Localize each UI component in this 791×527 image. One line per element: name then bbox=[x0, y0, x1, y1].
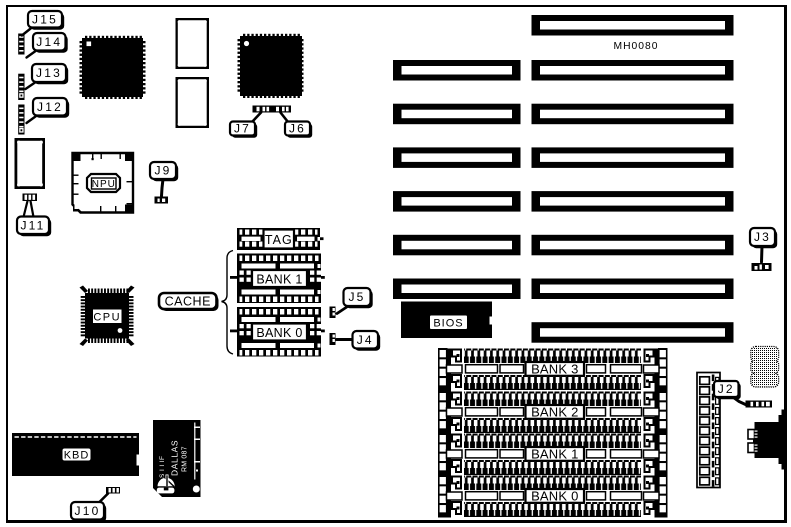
svg-text:J5: J5 bbox=[348, 290, 365, 304]
svg-text:J7: J7 bbox=[234, 122, 251, 136]
svg-text:TAG: TAG bbox=[265, 233, 293, 247]
svg-text:CACHE: CACHE bbox=[165, 295, 211, 309]
svg-text:J9: J9 bbox=[154, 164, 171, 178]
svg-text:BANK 3: BANK 3 bbox=[531, 361, 578, 376]
svg-text:J12: J12 bbox=[37, 100, 63, 114]
svg-text:MH0080: MH0080 bbox=[614, 41, 659, 52]
svg-text:J11: J11 bbox=[20, 218, 45, 232]
svg-text:J3: J3 bbox=[754, 230, 771, 244]
svg-text:BANK 1: BANK 1 bbox=[256, 273, 302, 287]
svg-text:BIOS: BIOS bbox=[433, 318, 463, 330]
svg-text:J2: J2 bbox=[718, 382, 735, 396]
svg-text:J6: J6 bbox=[289, 122, 306, 136]
svg-text:BANK 2: BANK 2 bbox=[531, 404, 578, 419]
svg-text:S I I IF: S I I IF bbox=[159, 456, 166, 478]
svg-text:J10: J10 bbox=[75, 504, 101, 518]
svg-text:RM 087: RM 087 bbox=[182, 446, 189, 472]
svg-text:J4: J4 bbox=[357, 333, 374, 347]
svg-text:BANK 0: BANK 0 bbox=[531, 488, 578, 503]
svg-text:CPU: CPU bbox=[93, 312, 121, 324]
svg-text:BANK 1: BANK 1 bbox=[531, 446, 578, 461]
svg-text:KBD: KBD bbox=[64, 450, 90, 462]
svg-text:BANK 0: BANK 0 bbox=[256, 326, 302, 340]
svg-text:J15: J15 bbox=[32, 12, 58, 26]
svg-text:NPU: NPU bbox=[92, 179, 116, 190]
svg-text:DALLAS: DALLAS bbox=[170, 440, 180, 476]
svg-text:J13: J13 bbox=[36, 66, 62, 80]
svg-text:J14: J14 bbox=[36, 35, 62, 49]
